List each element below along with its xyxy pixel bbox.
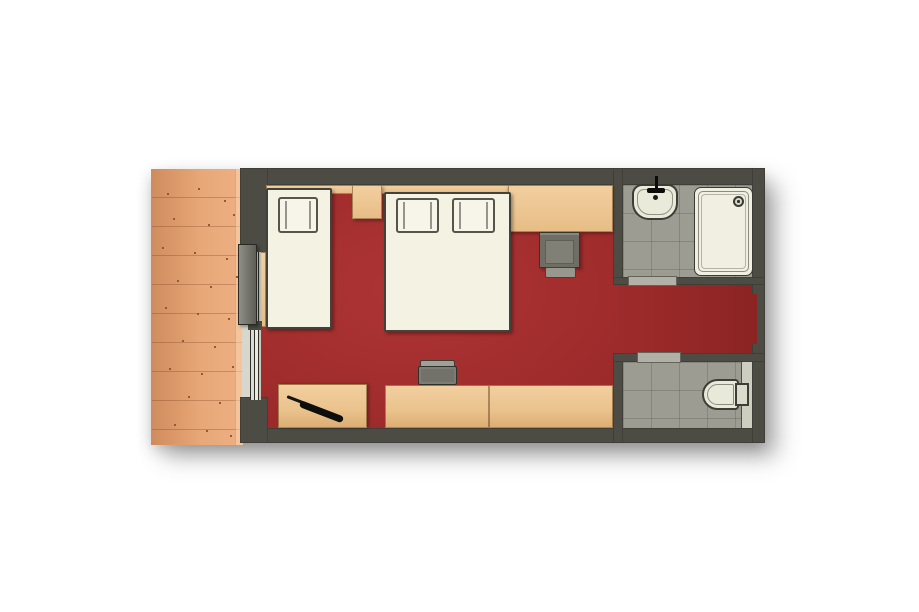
floor-plan-canvas — [0, 0, 919, 612]
sliding-door-leaf — [238, 244, 257, 325]
footstool — [545, 267, 576, 278]
desk-chair-seat — [418, 366, 457, 385]
exterior-gap — [242, 325, 250, 397]
faucet-icon — [655, 176, 658, 188]
side-desk — [278, 384, 367, 428]
wall-bathroom-divider-top — [613, 168, 623, 285]
faucet-handle — [647, 188, 665, 193]
armchair — [539, 232, 580, 268]
deck-nail-dots — [152, 169, 154, 171]
double-bed-pillow-left — [396, 198, 439, 233]
washbasin-drain — [653, 195, 658, 200]
shower-drain — [733, 196, 744, 207]
wc-doorway — [637, 352, 681, 363]
balcony-deck — [151, 169, 243, 445]
wall-bathroom-divider-bottom — [613, 353, 623, 443]
entrance-recess — [752, 294, 757, 344]
shower-tray — [694, 187, 753, 276]
wall-left-bottom-corner — [240, 397, 268, 443]
long-desk — [385, 385, 613, 428]
armchair-seat — [545, 240, 574, 264]
toilet — [702, 379, 739, 410]
double-bed-pillow-right — [452, 198, 495, 233]
toilet-seat-rim — [707, 384, 734, 405]
single-bed-pillow — [278, 197, 318, 233]
wall-hallway-bottom — [613, 353, 765, 362]
bathroom-doorway — [628, 276, 677, 286]
hallway-carpet — [618, 285, 754, 353]
wall-bottom — [240, 428, 765, 443]
wall-top — [240, 168, 765, 185]
luggage-bench — [508, 185, 613, 232]
nightstand — [352, 185, 382, 219]
desk-seam — [488, 386, 490, 427]
toilet-cistern — [735, 383, 749, 406]
deck-plank-lines — [152, 169, 243, 445]
